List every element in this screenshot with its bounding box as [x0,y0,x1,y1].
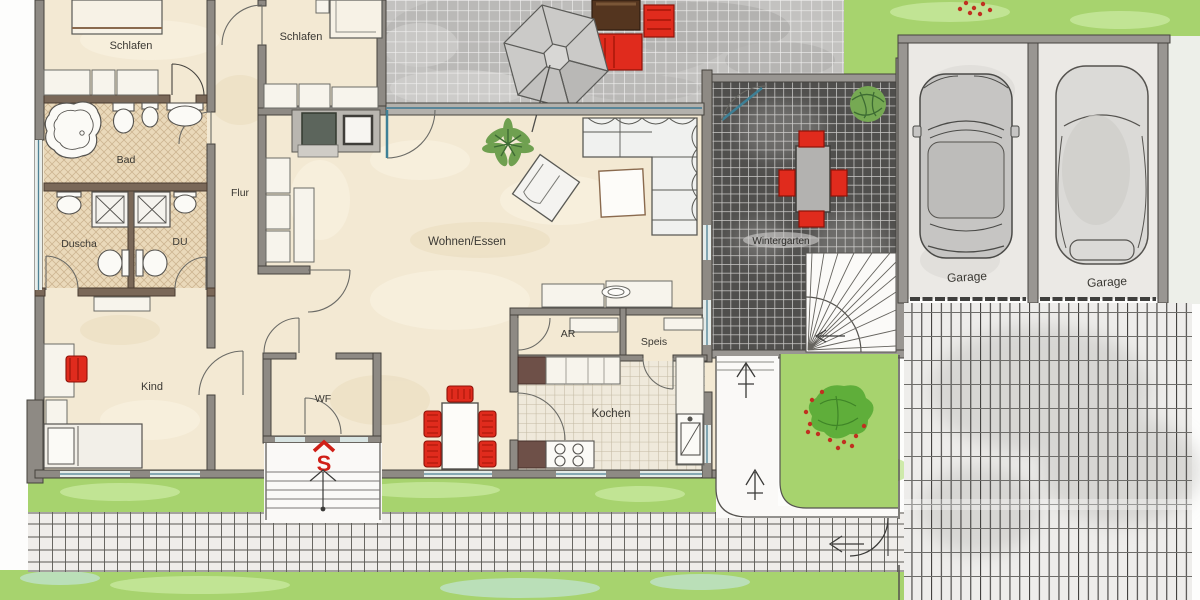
svg-text:Kind: Kind [141,381,163,393]
svg-text:Duscha: Duscha [61,238,97,250]
svg-text:Flur: Flur [231,187,250,199]
svg-text:Schlafen: Schlafen [110,40,153,52]
svg-text:Garage: Garage [947,269,988,285]
svg-text:Wintergarten: Wintergarten [752,236,809,247]
svg-text:AR: AR [561,328,576,340]
svg-text:DU: DU [172,236,187,248]
svg-text:Speis: Speis [641,336,667,348]
svg-text:WF: WF [315,393,331,405]
svg-text:S: S [317,451,332,476]
svg-text:Garage: Garage [1087,274,1128,290]
svg-text:Wohnen/Essen: Wohnen/Essen [428,236,506,248]
svg-text:Bad: Bad [117,154,136,166]
svg-text:Kochen: Kochen [591,408,630,420]
svg-text:Schlafen: Schlafen [280,31,323,43]
